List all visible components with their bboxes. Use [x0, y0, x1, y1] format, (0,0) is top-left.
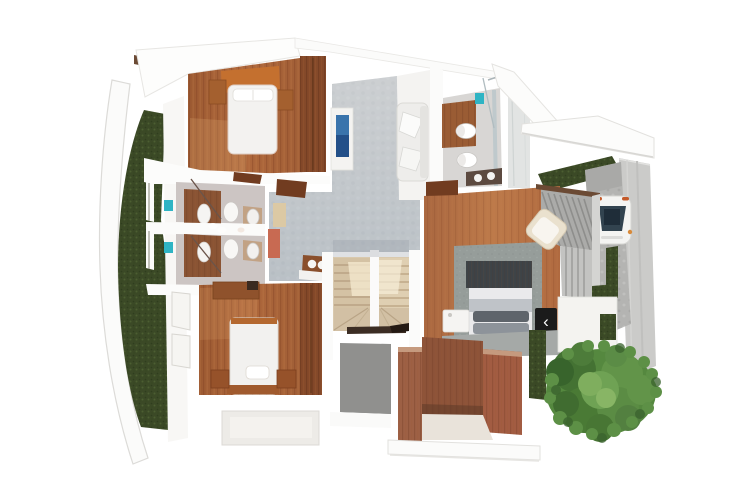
svg-text:‹: ‹ — [543, 312, 549, 331]
